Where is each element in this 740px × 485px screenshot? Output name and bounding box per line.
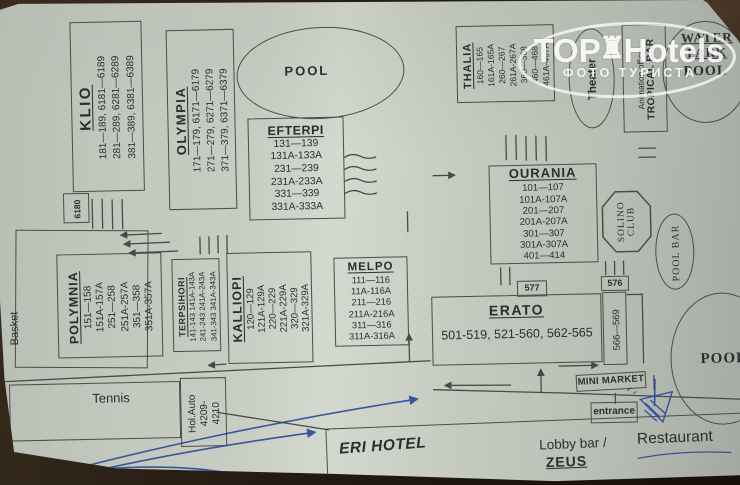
room-range-line: 120—129 xyxy=(245,285,257,333)
restaurant-label: Restaurant xyxy=(637,428,713,449)
ticks-below-klio xyxy=(92,198,123,230)
mini-market-label: MINI MARKET xyxy=(577,372,646,390)
ticks-above-kalliopi xyxy=(200,235,227,255)
tophotels-watermark: TOP♜Hotels ФОТО ТУРИСТА xyxy=(518,20,740,100)
pool-bar-ellipse: POOL BAR xyxy=(655,213,696,290)
room-range-line: 501-519, 521-560, 562-565 xyxy=(441,325,593,342)
building-thalia-title: THALIA xyxy=(461,42,474,89)
pool-bar-label: POOL BAR xyxy=(670,224,682,281)
basket-label-wrap: Basket xyxy=(3,299,26,357)
room-range-line: 171—179, 6171—6179 xyxy=(189,69,205,173)
room-range-line: 381—389, 6381—6389 xyxy=(124,55,141,159)
pen-bottom-arc xyxy=(62,464,282,485)
ticks-below-thalia xyxy=(506,134,547,162)
photo-of-resort-map: KLIO 181—189, 6181—6189281—289, 6281—628… xyxy=(0,0,740,485)
room-range-line: 231—239 xyxy=(271,163,323,177)
pool-se-label: POOL xyxy=(700,350,740,368)
building-olympia: OLYMPIA 171—179, 6171—6179271—279, 6271—… xyxy=(166,29,238,210)
watermark-brand: TOP♜Hotels xyxy=(524,32,734,70)
building-terpsihori-rooms: 141-143 141A-143A241-243 241A-243A341-34… xyxy=(187,271,219,341)
room-range-line: 211A-216A xyxy=(349,308,395,320)
room-range-line: 311—316 xyxy=(349,319,395,331)
tennis-label: Tennis xyxy=(92,390,130,406)
stairs-efterpi xyxy=(344,154,377,195)
room-range-line: 141-143 141A-143A xyxy=(187,271,199,341)
building-erato: ERATO 501-519, 521-560, 562-565 xyxy=(431,293,602,366)
tophotels-crown-icon: ♜ xyxy=(599,31,626,66)
basket-court xyxy=(15,230,149,369)
room-576-box: 576 xyxy=(601,276,629,292)
building-olympia-title: OLYMPIA xyxy=(172,87,188,156)
tennis-court: Tennis xyxy=(9,381,181,442)
building-terpsihori-title: TERPSIHORI xyxy=(176,276,187,336)
building-erato-title: ERATO xyxy=(489,301,545,318)
building-klio-rooms: 181—189, 6181—6189281—289, 6281—6289381—… xyxy=(95,55,141,159)
room-range-line: 4210 xyxy=(210,393,223,432)
room-range-line: 101—107 xyxy=(519,182,567,194)
building-olympia-rooms: 171—179, 6171—6179271—279, 6271—6279371—… xyxy=(189,68,233,172)
building-ourania-rooms: 101—107101A-107A201—207201A-207A301—3073… xyxy=(519,182,569,262)
room-range-line: 401—414 xyxy=(520,250,568,262)
building-melpo-title: MELPO xyxy=(347,260,393,273)
pool-top-label: POOL xyxy=(284,63,329,79)
building-ourania: OURANIA 101—107101A-107A201—207201A-207A… xyxy=(488,163,598,264)
eri-hotel-building: ERI HOTEL Lobby bar / ZEUS Restaurant xyxy=(325,412,740,485)
room-range-line: 271—279, 6271—6279 xyxy=(203,68,219,172)
mini-market-box: MINI MARKET xyxy=(576,371,647,392)
building-efterpi-rooms: 131—139131A-133A231—239231A-233A331—3393… xyxy=(270,138,323,215)
building-melpo: MELPO 111—11611A-116A211—216211A-216A311… xyxy=(333,256,409,347)
ticks-above-576 xyxy=(605,261,623,275)
room-range-line: 260—267 xyxy=(496,43,508,86)
hol-auto-label: Hol.Auto4209-4210 xyxy=(186,393,223,432)
room-577-label: 577 xyxy=(518,281,546,295)
room-range-line: 231A-233A xyxy=(271,175,323,189)
room-6180-label: 6180 xyxy=(72,200,82,219)
rails-right-ourania xyxy=(638,148,656,157)
room-range-line: 201A-207A xyxy=(520,216,568,228)
room-range-line: 160—165 xyxy=(474,44,486,87)
watermark-brand-hotels: Hotels xyxy=(624,32,725,70)
room-range-line: Hol.Auto xyxy=(186,394,199,433)
building-kalliopi: KALLIOPI 120—129121A-129A220—229221A-229… xyxy=(226,251,313,364)
room-range-line: 131A-133A xyxy=(270,150,322,164)
pen-crosshatch xyxy=(183,471,233,485)
room-range-line: 131—139 xyxy=(270,138,322,152)
solino-club-octagon: SOLINO CLUB xyxy=(601,190,652,253)
arrow-right-erato xyxy=(559,365,598,366)
building-terpsihori: TERPSIHORI 141-143 141A-143A241-243 241A… xyxy=(171,258,221,352)
rooms-566-569-label: 566—569 xyxy=(610,309,622,350)
room-6180-box: 6180 xyxy=(63,193,90,224)
arrow-left-terpsihori xyxy=(209,364,227,365)
room-576-label: 576 xyxy=(602,277,628,290)
building-kalliopi-title: KALLIOPI xyxy=(230,276,245,343)
room-range-line: 161A-165A xyxy=(485,43,497,86)
solino-label-line2: CLUB xyxy=(626,207,637,237)
arrow-left-erato xyxy=(445,384,511,386)
watermark-subtitle: ФОТО ТУРИСТА xyxy=(532,66,728,80)
room-range-line: 4209- xyxy=(198,394,211,433)
room-range-line: 321A-329A xyxy=(300,284,312,332)
building-melpo-rooms: 111—11611A-116A211—216211A-216A311—31631… xyxy=(348,274,395,343)
room-range-line: 211—216 xyxy=(348,297,394,309)
pen-corner-stroke xyxy=(8,454,77,485)
building-erato-rooms: 501-519, 521-560, 562-565 xyxy=(441,325,593,342)
road-to-hotel xyxy=(217,410,329,432)
rooms-566-569-box: 566—569 xyxy=(602,292,628,365)
room-range-line: 11A-116A xyxy=(348,285,394,297)
eri-hotel-label: ERI HOTEL xyxy=(339,434,427,458)
hol-auto-box: Hol.Auto4209-4210 xyxy=(180,377,227,447)
building-efterpi-title: EFTERPI xyxy=(267,122,324,137)
room-range-line: 341-343 341A-343A xyxy=(207,271,219,341)
building-kalliopi-rooms: 120—129121A-129A220—229221A-229A320—3293… xyxy=(245,284,312,333)
room-range-line: 331—339 xyxy=(271,188,323,202)
room-range-line: 111—116 xyxy=(348,274,394,286)
pen-flag-pole xyxy=(654,379,656,406)
zeus-label: ZEUS xyxy=(546,453,588,471)
watermark-brand-top: TOP xyxy=(533,32,600,70)
lobby-bar-label: Lobby bar / xyxy=(539,435,607,453)
room-range-line: 371—379, 6371—6379 xyxy=(217,68,233,172)
building-klio-title: KLIO xyxy=(76,85,94,131)
room-range-line: 331A-333A xyxy=(271,201,323,215)
building-klio: KLIO 181—189, 6181—6189281—289, 6281—628… xyxy=(69,21,145,192)
ticks-below-ourania xyxy=(501,267,510,285)
basket-label: Basket xyxy=(8,312,21,346)
room-range-line: 311A-316A xyxy=(349,331,395,343)
building-ourania-title: OURANIA xyxy=(509,165,577,181)
building-efterpi: EFTERPI 131—139131A-133A231—239231A-233A… xyxy=(247,117,345,221)
room-range-line: 241-243 241A-243A xyxy=(197,271,209,341)
